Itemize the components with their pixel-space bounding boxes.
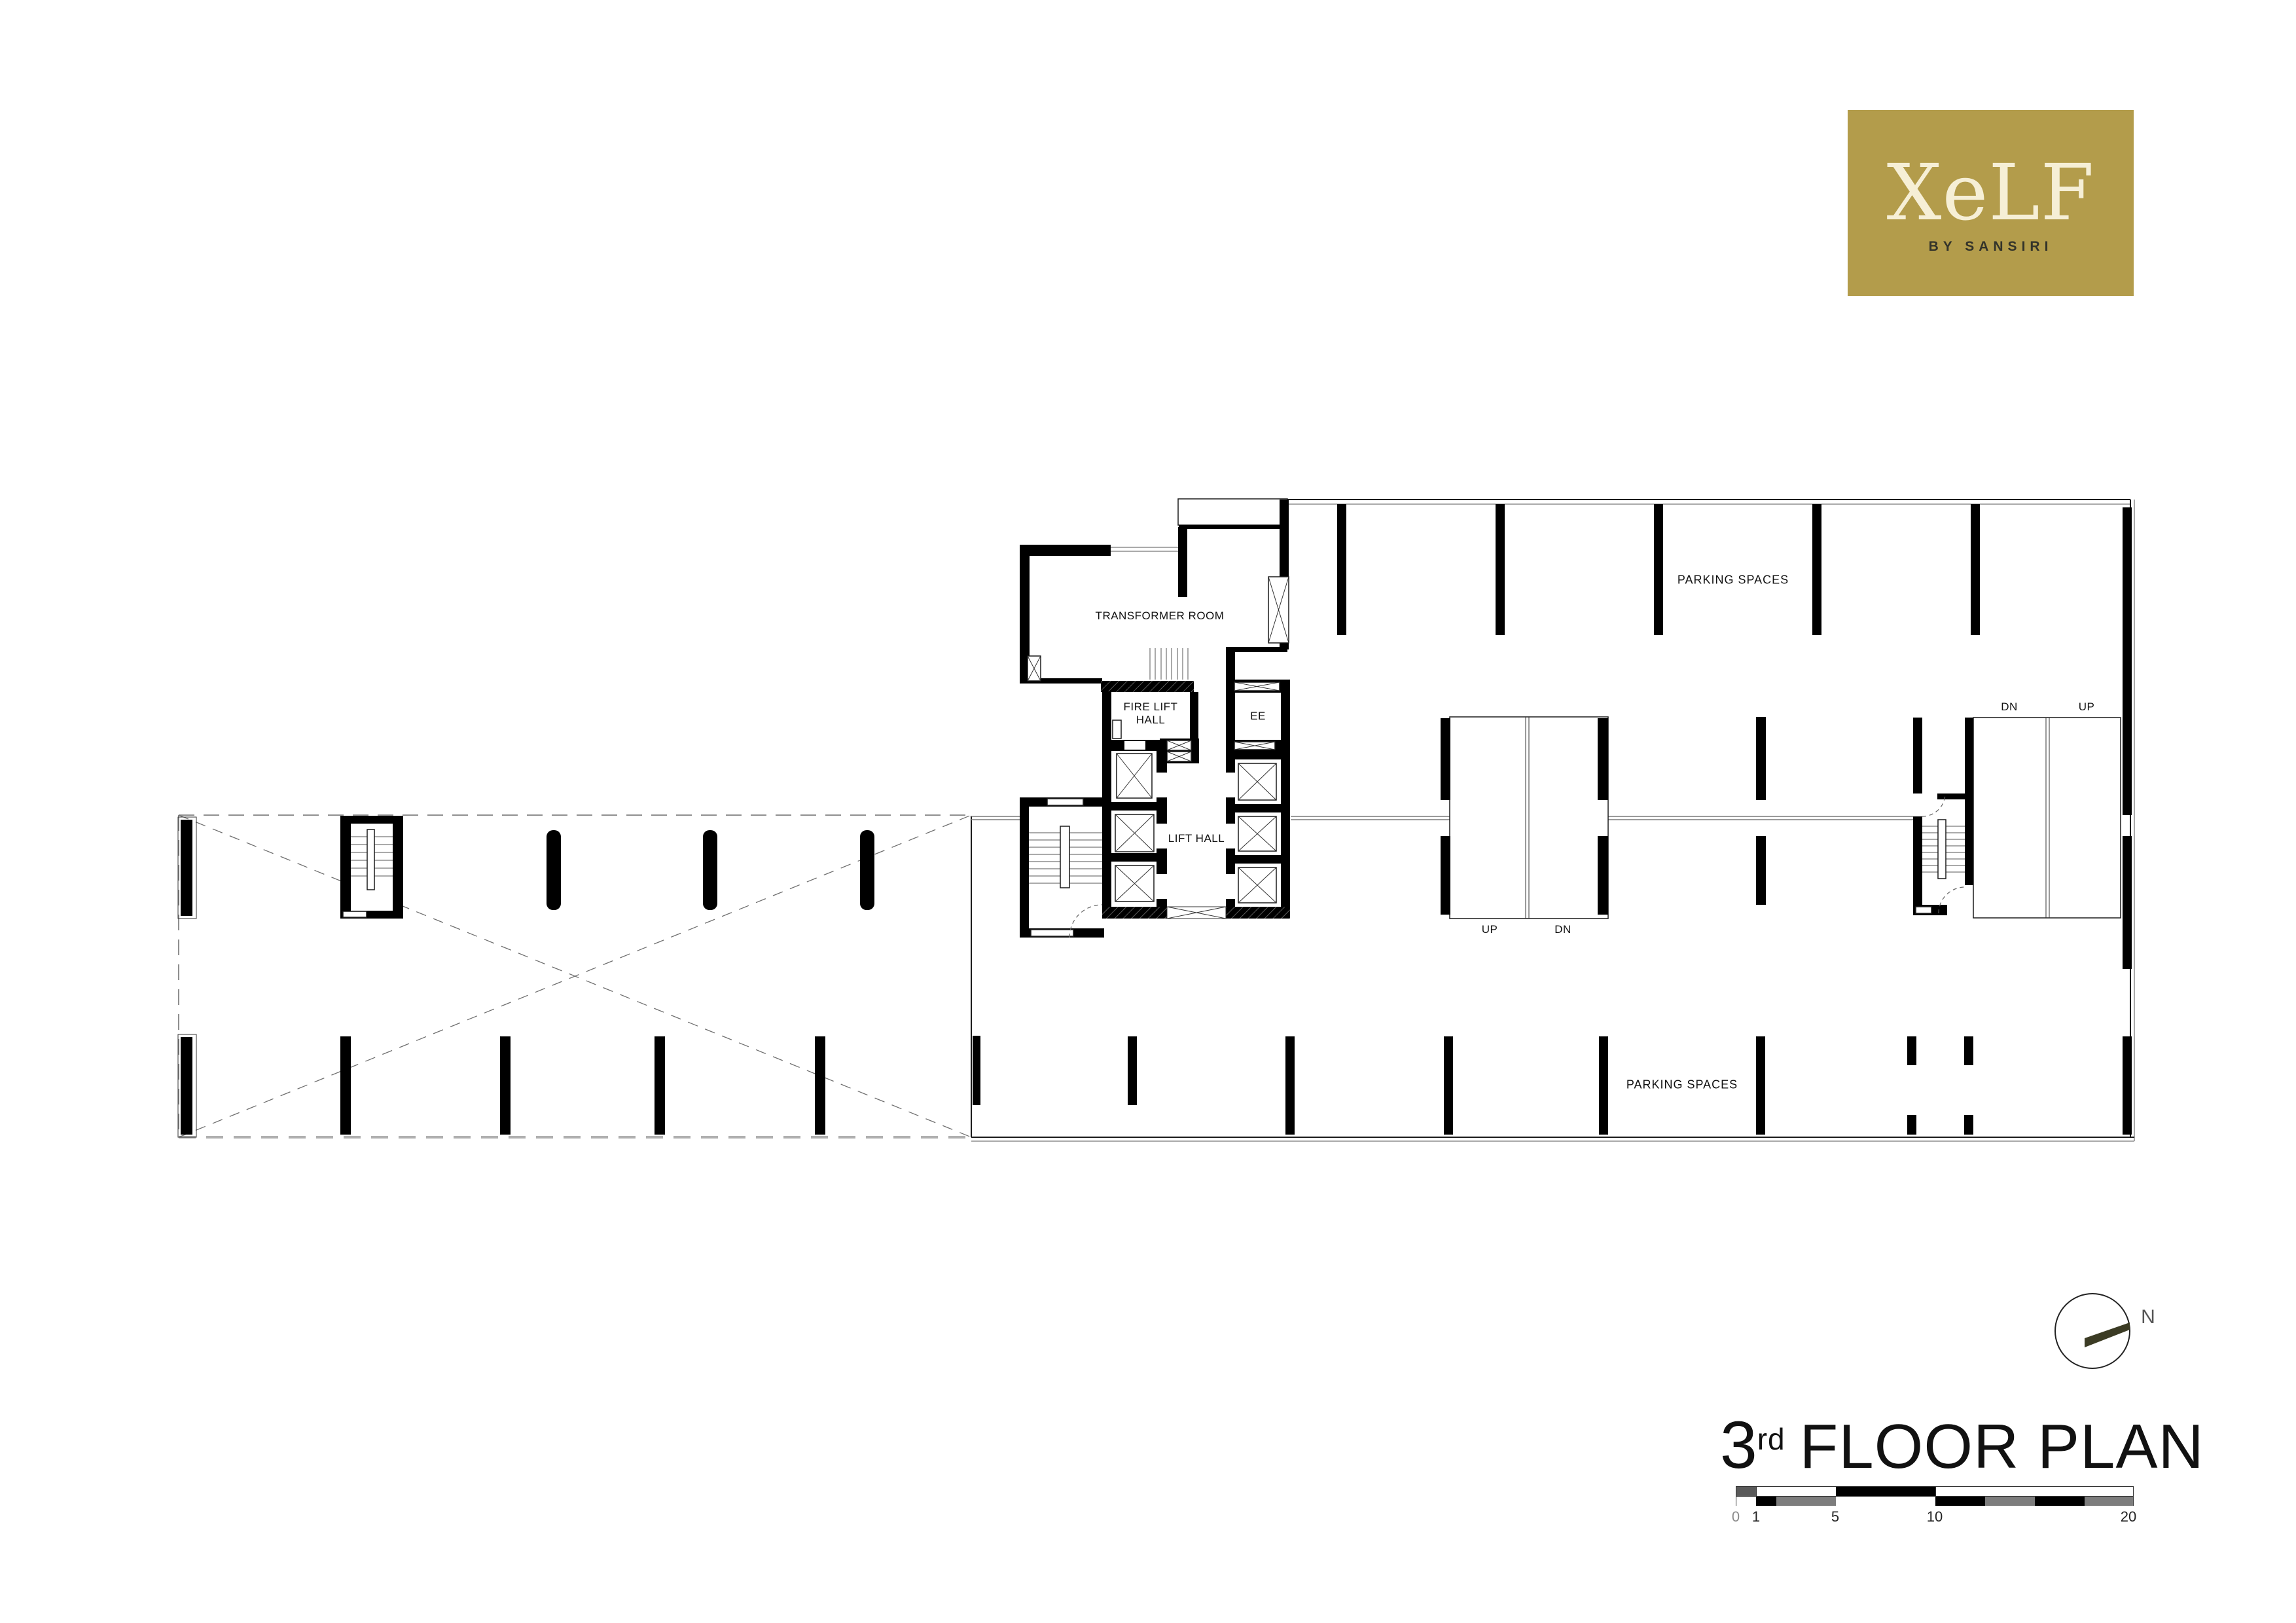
central-ramp (1441, 717, 1608, 919)
sheet-title: 3rdFLOOR PLAN (1720, 1409, 2145, 1481)
right-lift-bank (1226, 751, 1290, 919)
parking-spaces-top-label: PARKING SPACES (1677, 574, 1789, 587)
top-parking-ticks (1337, 504, 1980, 635)
brand-wordmark: XeLF (1886, 156, 2094, 228)
transformer-room (1020, 499, 1289, 693)
brand-logo: XeLF BY SANSIRI (1848, 110, 2134, 296)
brand-tagline: BY SANSIRI (1929, 239, 2053, 255)
floor-ordinal: rd (1757, 1422, 1785, 1456)
fire-hall-door-leaf (1113, 720, 1121, 739)
scale-tick-1: 1 (1752, 1508, 1760, 1525)
bottom-parking-ticks (973, 1036, 1973, 1135)
parking-spaces-bottom-label: PARKING SPACES (1626, 1078, 1738, 1092)
mid-column-ticks (1756, 717, 1766, 905)
scale-bar (1736, 1486, 2134, 1506)
right-stair (1913, 718, 1973, 915)
left-wing-stair (340, 816, 403, 919)
fire-lift-hall-label: FIRE LIFT HALL (1124, 701, 1178, 727)
transformer-room-label: TRANSFORMER ROOM (1096, 610, 1225, 623)
right-ramp (1973, 718, 2121, 918)
scale-bar-labels: 0 1 5 10 20 (1736, 1508, 2134, 1525)
left-wing-dashed-area (178, 815, 971, 1137)
ee-room-label: EE (1250, 710, 1266, 723)
north-label: N (2141, 1306, 2155, 1328)
fire-lift-hall-line1: FIRE LIFT (1124, 701, 1178, 714)
vent-shaft-east (1268, 577, 1289, 643)
north-arrow-icon (2055, 1294, 2130, 1368)
right-ramp-dn-label: DN (2001, 701, 2018, 714)
floor-plan-text: FLOOR PLAN (1800, 1412, 2204, 1482)
fire-wall-hatch (1101, 681, 1194, 692)
scale-tick-0: 0 (1732, 1508, 1740, 1525)
left-lift-bank (1102, 741, 1167, 919)
right-ramp-up-label: UP (2079, 701, 2095, 714)
center-ramp-dn-label: DN (1554, 923, 1571, 936)
floor-plan-canvas: TRANSFORMER ROOM FIRE LIFT HALL EE LIFT … (0, 0, 2296, 1623)
core-stair-room (1020, 797, 1104, 938)
floor-number: 3 (1720, 1408, 1757, 1482)
scale-bar-top-row (1736, 1487, 2133, 1496)
scale-bar-bottom-row (1736, 1496, 2133, 1506)
vent-shaft-southwest (1028, 656, 1041, 681)
transformer-stair (1150, 648, 1188, 680)
lift-hall-entry (1167, 907, 1226, 919)
scale-tick-5: 5 (1831, 1508, 1839, 1525)
roof-notch (1178, 499, 1287, 525)
left-wing-bottom-parking-ticks (340, 1036, 825, 1135)
left-wing-top-parking-ticks (547, 830, 874, 910)
center-ramp-up-label: UP (1482, 923, 1498, 936)
scale-tick-20: 20 (2121, 1508, 2136, 1525)
drive-aisle-lines (971, 816, 1913, 820)
fire-lift-hall-line2: HALL (1124, 714, 1178, 727)
scale-tick-10: 10 (1927, 1508, 1943, 1525)
lift-hall-label: LIFT HALL (1168, 832, 1225, 845)
